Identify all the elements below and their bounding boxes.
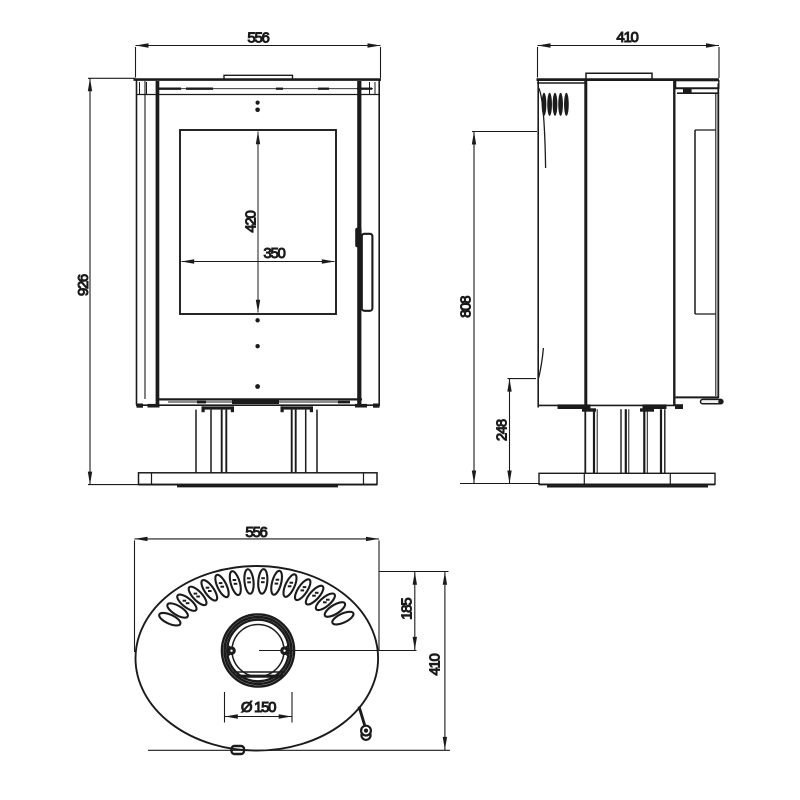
svg-text:556: 556 (247, 30, 269, 47)
svg-text:808: 808 (458, 296, 475, 318)
svg-text:410: 410 (427, 653, 444, 675)
svg-text:556: 556 (245, 524, 267, 541)
svg-text:420: 420 (243, 210, 260, 232)
svg-text:926: 926 (75, 274, 92, 296)
svg-text:Ø 150: Ø 150 (241, 699, 276, 716)
svg-text:185: 185 (398, 598, 415, 620)
svg-text:410: 410 (616, 29, 638, 46)
svg-text:248: 248 (494, 419, 511, 441)
svg-text:350: 350 (263, 245, 285, 262)
